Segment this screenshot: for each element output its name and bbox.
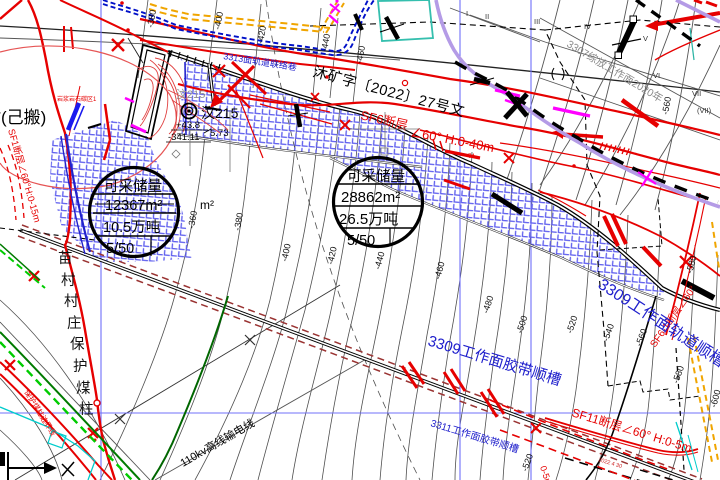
svg-text:岩浆岩石碳区1: 岩浆岩石碳区1 [57,95,97,103]
svg-text:可采储量: 可采储量 [104,178,162,195]
svg-text:苗: 苗 [58,250,73,267]
svg-text:IV: IV [584,22,591,31]
svg-text:5/50: 5/50 [106,241,134,257]
svg-text:m²: m² [200,198,214,212]
svg-text:村(己搬): 村(己搬) [0,108,46,127]
svg-text:5/50: 5/50 [347,233,375,249]
svg-text:5.73: 5.73 [210,128,229,139]
svg-text:柱: 柱 [79,401,94,418]
svg-text:74: 74 [468,154,475,160]
svg-text:庄: 庄 [67,314,82,332]
svg-text:VII: VII [692,89,701,98]
svg-text:可采储量: 可采储量 [347,168,405,185]
svg-text:12367m²: 12367m² [105,198,162,214]
svg-text:28862m²: 28862m² [341,189,400,206]
svg-text:I: I [466,9,468,18]
svg-text:II: II [485,12,489,21]
svg-text:VI: VI [653,71,660,80]
svg-text:护: 护 [73,358,88,375]
svg-text:保: 保 [70,336,85,353]
svg-text:汶215: 汶215 [176,87,205,101]
svg-text:10.5万吨: 10.5万吨 [103,219,160,236]
svg-text:+43.8: +43.8 [176,120,200,131]
svg-text:III: III [534,17,540,26]
svg-text:(VII): (VII) [697,106,712,115]
svg-text:村: 村 [61,272,76,289]
svg-text:V: V [643,34,648,43]
svg-text:煤: 煤 [76,380,91,397]
svg-text:26.5万吨: 26.5万吨 [339,211,398,228]
svg-text:汶215: 汶215 [201,105,239,121]
svg-text:村: 村 [64,293,79,310]
svg-text:-341.11: -341.11 [168,132,200,143]
